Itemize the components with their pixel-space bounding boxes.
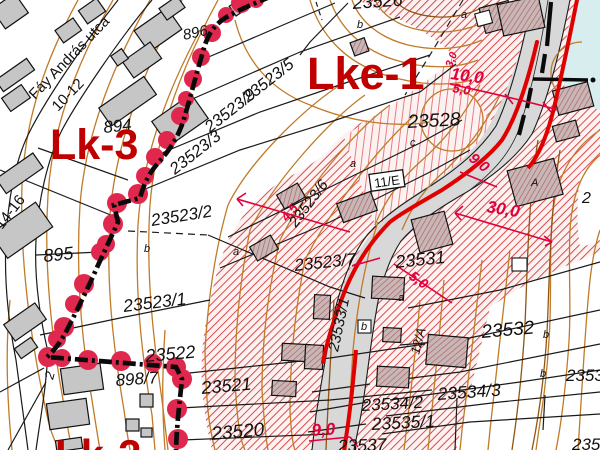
svg-text:9,0: 9,0 [311, 419, 336, 440]
svg-text:23528: 23528 [406, 109, 461, 133]
svg-text:b: b [361, 321, 367, 333]
svg-text:b: b [543, 329, 549, 341]
svg-text:b: b [144, 243, 150, 255]
svg-text:235: 235 [571, 435, 600, 450]
svg-text:a: a [350, 158, 356, 170]
svg-text:A: A [530, 177, 538, 189]
svg-text:a: a [233, 246, 239, 258]
svg-text:2: 2 [581, 190, 591, 207]
svg-text:895: 895 [42, 243, 75, 266]
svg-text:c: c [410, 137, 416, 149]
svg-text:b: b [357, 19, 363, 31]
svg-text:a: a [398, 292, 404, 304]
svg-text:a: a [461, 9, 467, 21]
svg-text:23535/1: 23535/1 [370, 411, 435, 434]
svg-text:b: b [540, 368, 546, 380]
svg-text:Lke-1: Lke-1 [307, 48, 425, 99]
svg-text:Lk-3: Lk-3 [50, 121, 138, 169]
svg-text:23537: 23537 [336, 434, 388, 450]
svg-text:898/7: 898/7 [115, 368, 159, 390]
svg-text:23533: 23533 [565, 366, 600, 385]
svg-text:Lk-2: Lk-2 [55, 431, 141, 450]
